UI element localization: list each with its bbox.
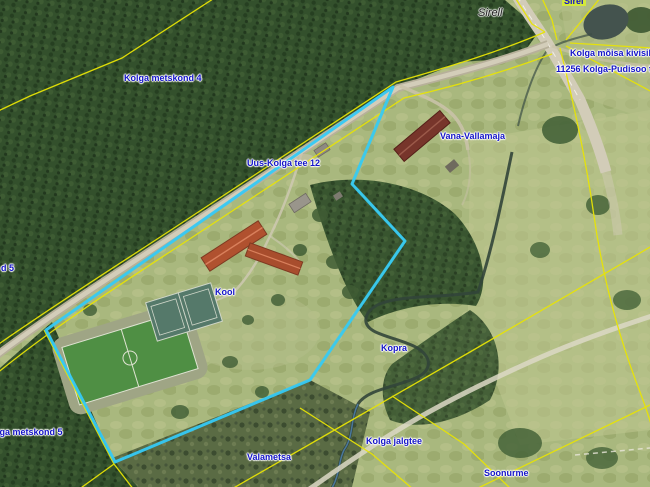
aerial-imagery [0,0,650,487]
map-viewport[interactable]: Sirel Sirell Kolga mõisa kivisild 11256 … [0,0,650,487]
